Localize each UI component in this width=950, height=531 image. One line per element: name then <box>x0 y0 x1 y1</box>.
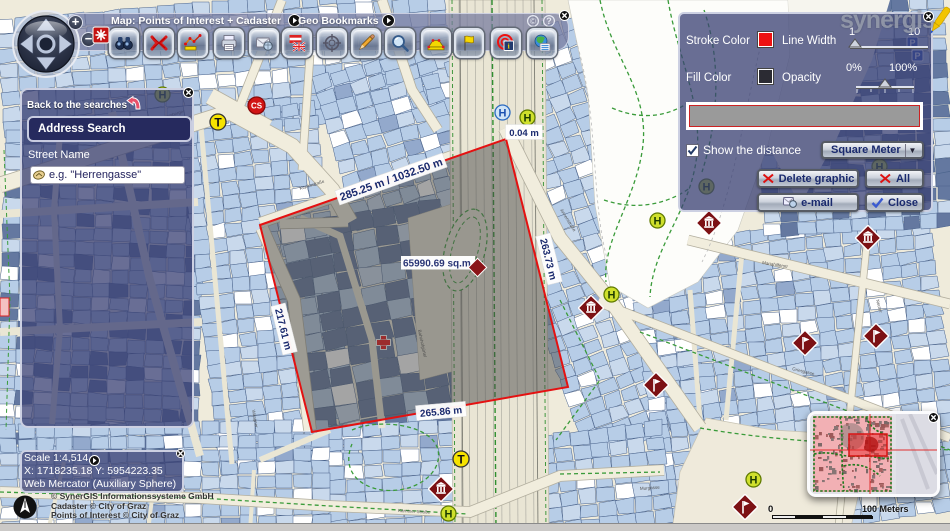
svg-text:?: ? <box>546 16 552 26</box>
svg-text:i: i <box>508 42 510 51</box>
svg-text:©: © <box>530 17 536 26</box>
svg-text:265.86 m: 265.86 m <box>420 405 463 420</box>
svg-text:65990.69 sq.m.: 65990.69 sq.m. <box>403 259 474 270</box>
svg-text:0.04 m: 0.04 m <box>509 128 539 139</box>
